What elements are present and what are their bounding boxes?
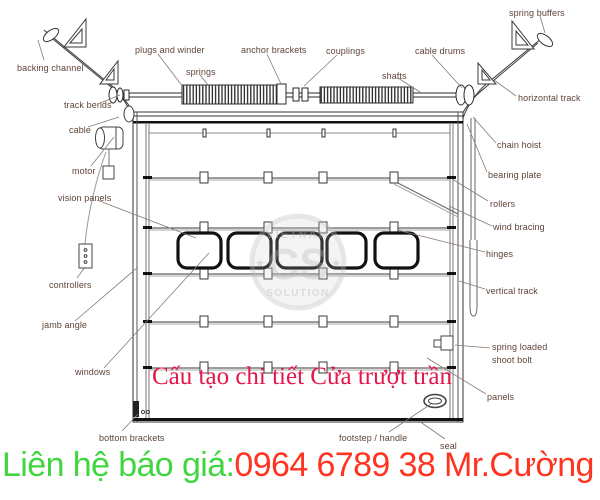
label-windows: windows: [75, 366, 110, 379]
coupling: [302, 88, 308, 101]
anchor-bracket: [277, 84, 286, 104]
leader-line: [419, 421, 445, 439]
diagram-canvas: VIETNAM CS ★ ★ SOLUTION backing channelp…: [0, 0, 600, 500]
label-rollers: rollers: [490, 198, 515, 211]
leader-line: [77, 267, 85, 278]
label-bottom-brackets: bottom brackets: [99, 432, 165, 445]
label-wind-bracing: wind bracing: [493, 221, 545, 234]
spring-buffer-right: [535, 31, 555, 49]
label-hinges: hinges: [486, 248, 513, 261]
label-plugs-and-winder: plugs and winder: [135, 44, 205, 57]
label-chain-hoist: chain hoist: [497, 139, 541, 152]
bracket-icon: [100, 61, 118, 84]
label-motor: motor: [72, 165, 96, 178]
label-shafts: shafts: [382, 70, 407, 83]
leader-line: [88, 117, 119, 127]
leader-line: [158, 54, 183, 87]
spring-right: [320, 87, 413, 103]
label-footstep-handle: footstep / handle: [339, 432, 407, 445]
label-jamb-angle: jamb angle: [42, 319, 87, 332]
spring-shaft-assembly: [109, 84, 474, 105]
leader-line: [467, 124, 487, 172]
label-spring-loaded-shoot-bolt: spring loaded shoot bolt: [492, 341, 554, 367]
label-bearing-plate: bearing plate: [488, 169, 541, 182]
label-cable: cable: [69, 124, 91, 137]
watermark-monogram: CS: [267, 240, 328, 289]
leader-line: [267, 54, 281, 84]
label-controllers: controllers: [49, 279, 92, 292]
corner-pulley: [124, 106, 134, 122]
leader-line: [432, 55, 462, 88]
label-backing-channel: backing channel: [17, 62, 84, 75]
leader-line: [304, 55, 337, 86]
diagram-title: Cấu tạo chi tiết Cửa trượt trần: [152, 363, 452, 391]
coupling: [293, 88, 299, 101]
chain-loop: [470, 240, 477, 316]
label-track-bends: track bends: [64, 99, 112, 112]
horizontal-track-right: [459, 21, 555, 121]
label-vision-panels: vision panels: [58, 192, 111, 205]
controller-box: [79, 244, 92, 268]
label-springs: springs: [186, 66, 216, 79]
leader-line: [38, 40, 44, 60]
contact-line: Liên hệ báo giá:0964 6789 38 Mr.Cường: [2, 446, 594, 485]
leader-line: [75, 267, 138, 321]
label-spring-buffers: spring buffers: [509, 7, 565, 20]
watermark-logo: VIETNAM CS ★ ★ SOLUTION: [252, 216, 344, 308]
label-couplings: couplings: [326, 45, 365, 58]
watermark-bottom: SOLUTION: [266, 288, 330, 299]
label-anchor-brackets: anchor brackets: [241, 44, 307, 57]
star-icon: ★: [331, 258, 341, 270]
label-horizontal-track: horizontal track: [518, 92, 581, 105]
leader-line: [494, 80, 516, 96]
contact-phone: 0964 6789 38 Mr.Cường: [234, 446, 593, 484]
cable-drum: [464, 85, 474, 105]
bracket-icon: [478, 63, 496, 84]
shoot-bolt: [441, 336, 453, 350]
label-cable-drums: cable drums: [415, 45, 465, 58]
leader-line: [473, 117, 496, 143]
label-panels: panels: [487, 391, 514, 404]
spring-left: [182, 85, 277, 104]
label-vertical-track: vertical track: [486, 285, 538, 298]
bottom-bracket-icon: [133, 401, 139, 417]
contact-prefix: Liên hệ báo giá:: [2, 446, 234, 484]
star-icon: ★: [255, 258, 265, 270]
pendant-switch: [103, 166, 114, 179]
